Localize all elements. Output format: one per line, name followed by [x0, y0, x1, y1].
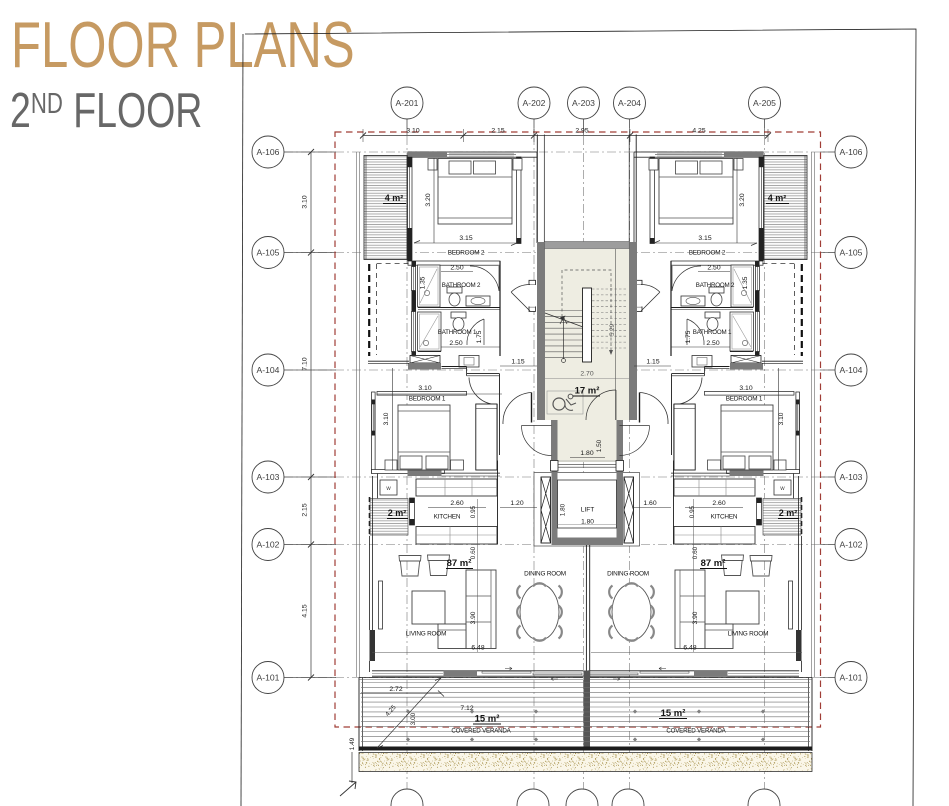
svg-text:BATHROOM 1: BATHROOM 1: [438, 329, 477, 336]
svg-text:A-205: A-205: [753, 98, 776, 108]
svg-text:A-106: A-106: [840, 147, 863, 157]
svg-text:4 m²: 4 m²: [768, 193, 787, 203]
svg-text:17 m²: 17 m²: [575, 386, 600, 397]
svg-text:1.49: 1.49: [349, 737, 356, 750]
svg-text:87 m²: 87 m²: [701, 558, 726, 569]
svg-text:COVERED VERANDA: COVERED VERANDA: [666, 728, 726, 735]
svg-text:LIVING ROOM: LIVING ROOM: [406, 631, 446, 638]
svg-text:3.90: 3.90: [470, 611, 477, 624]
svg-text:DINING ROOM: DINING ROOM: [524, 571, 566, 578]
svg-text:1.60: 1.60: [643, 500, 656, 507]
svg-text:0.95: 0.95: [470, 505, 477, 518]
svg-text:BATHROOM 2: BATHROOM 2: [696, 282, 735, 289]
svg-text:1.80: 1.80: [580, 450, 593, 457]
svg-text:3.90: 3.90: [692, 611, 699, 624]
svg-text:3.10: 3.10: [778, 412, 785, 425]
svg-text:15 m²: 15 m²: [661, 708, 686, 719]
svg-text:6.48: 6.48: [471, 645, 484, 652]
svg-text:2.15: 2.15: [302, 503, 309, 516]
svg-text:4.25: 4.25: [692, 128, 705, 135]
svg-text:7.12: 7.12: [460, 705, 473, 712]
svg-text:1.50: 1.50: [596, 439, 603, 452]
svg-text:A-101: A-101: [840, 673, 863, 683]
svg-text:5.29: 5.29: [609, 323, 616, 336]
svg-text:3.10: 3.10: [406, 128, 419, 135]
svg-text:BEDROOM 2: BEDROOM 2: [448, 250, 485, 257]
svg-text:1.15: 1.15: [646, 359, 659, 366]
svg-text:A-101: A-101: [257, 673, 280, 683]
svg-text:1.15: 1.15: [511, 359, 524, 366]
svg-text:1.20: 1.20: [510, 500, 523, 507]
svg-text:2.60: 2.60: [712, 500, 725, 507]
svg-text:0.95: 0.95: [689, 505, 696, 518]
svg-text:BEDROOM 1: BEDROOM 1: [409, 396, 446, 403]
svg-text:A-202: A-202: [523, 98, 546, 108]
svg-text:DINING ROOM: DINING ROOM: [607, 571, 649, 578]
svg-text:3.20: 3.20: [425, 193, 432, 206]
svg-text:A-102: A-102: [840, 540, 863, 550]
svg-text:A-104: A-104: [840, 365, 863, 375]
svg-text:KITCHEN: KITCHEN: [711, 514, 738, 521]
svg-text:LIFT: LIFT: [581, 507, 595, 514]
svg-text:1.80: 1.80: [581, 519, 594, 526]
svg-text:4.15: 4.15: [302, 604, 309, 617]
svg-text:2.70: 2.70: [580, 371, 593, 378]
svg-text:2 m²: 2 m²: [388, 508, 407, 518]
svg-text:2.15: 2.15: [491, 128, 504, 135]
svg-text:1.35: 1.35: [742, 276, 749, 289]
svg-text:3.10: 3.10: [302, 195, 309, 208]
svg-text:BEDROOM 2: BEDROOM 2: [689, 250, 726, 257]
svg-text:FLOOR PLANS: FLOOR PLANS: [11, 9, 355, 81]
svg-text:2.50: 2.50: [707, 265, 720, 272]
svg-text:1.75: 1.75: [476, 330, 483, 343]
svg-text:A-106: A-106: [257, 147, 280, 157]
svg-text:w: w: [385, 486, 391, 492]
svg-text:A-102: A-102: [257, 540, 280, 550]
svg-text:3.10: 3.10: [383, 412, 390, 425]
svg-text:3.10: 3.10: [739, 385, 752, 392]
svg-text:0.60: 0.60: [692, 546, 699, 559]
svg-text:2.50: 2.50: [450, 265, 463, 272]
svg-text:KITCHEN: KITCHEN: [434, 514, 461, 521]
svg-text:BEDROOM 1: BEDROOM 1: [726, 396, 763, 403]
svg-text:A-105: A-105: [257, 248, 280, 258]
svg-text:1.80: 1.80: [560, 503, 567, 516]
svg-text:2.50: 2.50: [449, 340, 462, 347]
svg-text:BATHROOM 1: BATHROOM 1: [693, 329, 732, 336]
svg-text:0.60: 0.60: [470, 546, 477, 559]
svg-text:A-204: A-204: [618, 98, 641, 108]
svg-text:2.72: 2.72: [389, 686, 402, 693]
svg-text:3.15: 3.15: [698, 235, 711, 242]
svg-text:A-104: A-104: [257, 365, 280, 375]
svg-text:4 m²: 4 m²: [385, 193, 404, 203]
svg-text:1.35: 1.35: [420, 276, 427, 289]
svg-text:2 m²: 2 m²: [779, 508, 798, 518]
svg-text:87 m²: 87 m²: [447, 558, 472, 569]
svg-text:3.10: 3.10: [418, 385, 431, 392]
svg-text:6.48: 6.48: [683, 645, 696, 652]
svg-text:2.60: 2.60: [450, 500, 463, 507]
svg-text:A-203: A-203: [572, 98, 595, 108]
svg-text:2.50: 2.50: [706, 340, 719, 347]
svg-text:7.10: 7.10: [302, 357, 309, 370]
svg-text:3.15: 3.15: [459, 235, 472, 242]
svg-text:2.95: 2.95: [575, 128, 588, 135]
svg-text:3.20: 3.20: [739, 193, 746, 206]
svg-text:15 m²: 15 m²: [475, 714, 500, 725]
svg-text:COVERED VERANDA: COVERED VERANDA: [451, 728, 511, 735]
svg-text:A-201: A-201: [396, 98, 419, 108]
svg-text:BATHROOM 2: BATHROOM 2: [442, 282, 481, 289]
svg-text:A-103: A-103: [840, 472, 863, 482]
svg-text:3.00: 3.00: [410, 712, 417, 725]
svg-text:A-105: A-105: [840, 248, 863, 258]
svg-text:LIVING ROOM: LIVING ROOM: [728, 631, 768, 638]
svg-text:A-103: A-103: [257, 472, 280, 482]
svg-text:1.75: 1.75: [685, 330, 692, 343]
